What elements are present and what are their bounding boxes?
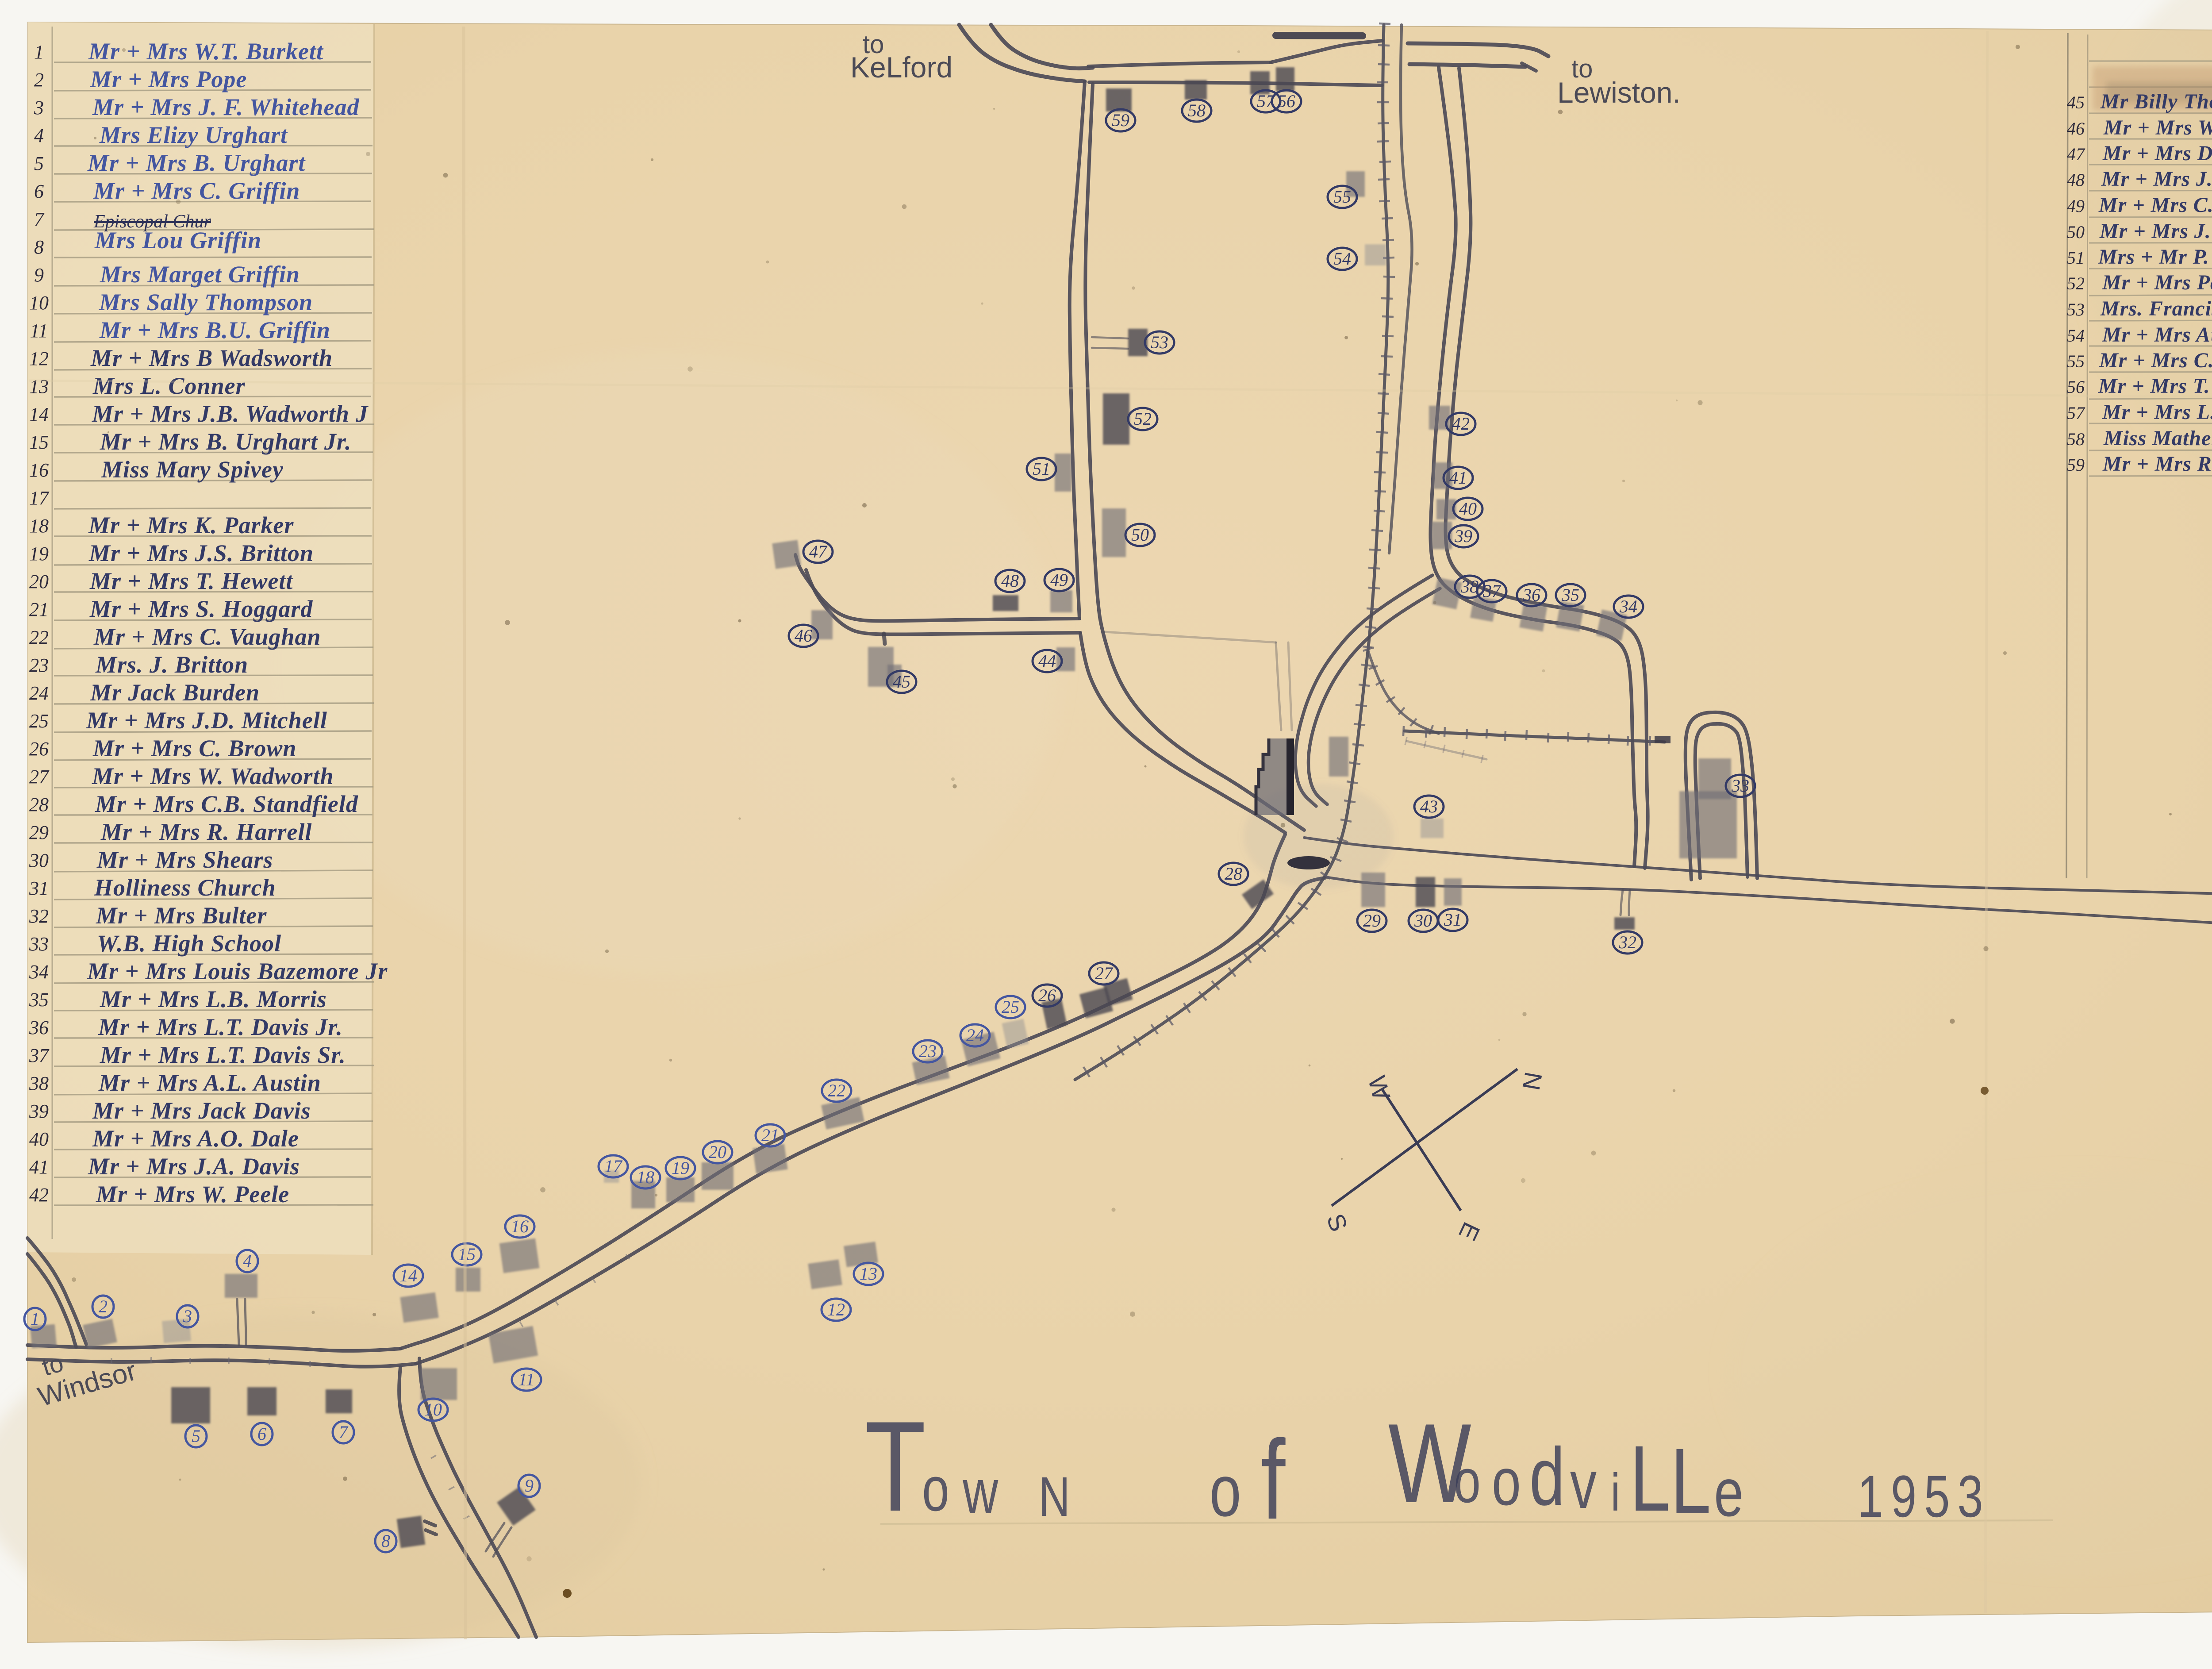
svg-text:38: 38 <box>1460 577 1479 596</box>
svg-text:16: 16 <box>29 459 49 481</box>
svg-text:Mr + Mrs Dunning: Mr + Mrs Dunning <box>2102 142 2212 165</box>
svg-text:Mr + Mrs R. Harrell: Mr + Mrs R. Harrell <box>100 819 312 845</box>
svg-text:57: 57 <box>2067 403 2085 423</box>
svg-text:Lewiston.: Lewiston. <box>1557 76 1681 109</box>
svg-text:52: 52 <box>2067 273 2085 293</box>
svg-text:o: o <box>1210 1450 1241 1532</box>
svg-text:L: L <box>1630 1427 1671 1531</box>
svg-text:55: 55 <box>1333 187 1351 207</box>
svg-text:Mr + Mrs A.L. Austin: Mr + Mrs A.L. Austin <box>98 1069 321 1096</box>
svg-text:52: 52 <box>1134 409 1152 429</box>
svg-text:Mr + Mrs Shears: Mr + Mrs Shears <box>96 846 273 873</box>
svg-text:Mrs. Francis Howard: Mrs. Francis Howard <box>2100 297 2212 320</box>
svg-text:9: 9 <box>525 1476 534 1496</box>
svg-text:10: 10 <box>424 1400 442 1419</box>
svg-text:Mr + Mrs Pope: Mr + Mrs Pope <box>90 66 247 92</box>
svg-text:7: 7 <box>339 1422 349 1442</box>
svg-text:1: 1 <box>34 41 44 63</box>
svg-text:Mr + Mrs L.B. Morris: Mr + Mrs L.B. Morris <box>100 986 327 1012</box>
svg-text:Mr + Mrs J.D. Mitchell: Mr + Mrs J.D. Mitchell <box>86 707 327 734</box>
svg-text:T: T <box>865 1395 926 1538</box>
svg-text:Mr + Mrs W. Wadworth: Mr + Mrs W. Wadworth <box>92 763 334 789</box>
svg-text:9: 9 <box>34 264 44 286</box>
svg-text:38: 38 <box>29 1073 49 1094</box>
svg-text:17: 17 <box>604 1156 623 1176</box>
svg-text:Mr + Mrs K. Parker: Mr + Mrs K. Parker <box>88 512 294 538</box>
svg-text:23: 23 <box>919 1041 937 1061</box>
svg-text:23: 23 <box>29 654 49 676</box>
svg-text:Mr + Mrs S. Hoggard: Mr + Mrs S. Hoggard <box>89 596 313 622</box>
svg-text:53: 53 <box>1151 332 1168 352</box>
svg-text:W.B. High School: W.B. High School <box>97 930 281 957</box>
svg-text:14: 14 <box>29 404 49 425</box>
svg-text:24: 24 <box>29 682 49 704</box>
svg-text:30: 30 <box>29 850 49 871</box>
svg-text:Mr + Mrs W.C. Askew: Mr + Mrs W.C. Askew <box>2103 116 2212 139</box>
svg-text:13: 13 <box>29 376 49 397</box>
svg-text:15: 15 <box>29 431 49 453</box>
svg-text:39: 39 <box>1454 526 1472 546</box>
svg-text:40: 40 <box>29 1128 49 1150</box>
svg-text:o: o <box>1454 1446 1481 1515</box>
svg-text:11: 11 <box>518 1369 534 1389</box>
svg-text:Mr + Mrs T. Hewett: Mr + Mrs T. Hewett <box>89 568 293 594</box>
svg-text:51: 51 <box>1033 459 1050 479</box>
svg-text:55: 55 <box>2067 351 2085 371</box>
svg-text:Miss Mather Bazemore: Miss Mather Bazemore <box>2103 427 2212 450</box>
svg-text:Mrs L. Conner: Mrs L. Conner <box>92 373 246 399</box>
svg-text:Mrs Sally Thompson: Mrs Sally Thompson <box>99 289 313 315</box>
svg-text:Mr + Mrs J.A. Davis: Mr + Mrs J.A. Davis <box>88 1153 300 1180</box>
svg-text:12: 12 <box>29 348 49 369</box>
svg-text:d: d <box>1529 1431 1565 1523</box>
svg-text:Mr + Mrs C.L. Haggard: Mr + Mrs C.L. Haggard <box>2099 349 2212 372</box>
svg-text:Mr + Mrs L. Bazemore Sr: Mr + Mrs L. Bazemore Sr <box>2102 400 2212 424</box>
svg-text:o: o <box>1492 1444 1521 1519</box>
svg-text:Mr + Mrs B.U. Griffin: Mr + Mrs B.U. Griffin <box>99 317 330 343</box>
svg-text:20: 20 <box>29 571 49 592</box>
svg-text:35: 35 <box>1561 585 1579 605</box>
svg-text:32: 32 <box>1618 932 1636 952</box>
svg-text:Mr + Mrs Louis Bazemore Jr: Mr + Mrs Louis Bazemore Jr <box>87 958 388 984</box>
svg-text:59: 59 <box>2067 455 2085 475</box>
svg-text:Mr + Mrs L.T. Davis Jr.: Mr + Mrs L.T. Davis Jr. <box>98 1014 343 1040</box>
svg-text:25: 25 <box>1002 997 1019 1017</box>
svg-text:Mr Billy Thompson: Mr Billy Thompson <box>2100 90 2212 113</box>
svg-text:24: 24 <box>966 1025 984 1045</box>
svg-text:40: 40 <box>1459 499 1477 519</box>
svg-text:36: 36 <box>1522 585 1540 605</box>
svg-text:8: 8 <box>381 1531 390 1551</box>
svg-text:Mr + Mrs J.S. Britton: Mr + Mrs J.S. Britton <box>88 540 314 566</box>
svg-text:54: 54 <box>2067 326 2085 346</box>
svg-text:58: 58 <box>1188 100 1206 120</box>
svg-text:30: 30 <box>1414 911 1432 931</box>
svg-text:Mr + Mrs R. Teaster: Mr + Mrs R. Teaster <box>2102 452 2212 476</box>
svg-text:5: 5 <box>34 153 44 174</box>
svg-text:33: 33 <box>29 933 49 955</box>
svg-text:Mr + Mrs W. Peele: Mr + Mrs W. Peele <box>96 1181 289 1208</box>
svg-text:21: 21 <box>29 599 49 620</box>
svg-text:Mr + Mrs T. Lawrence: Mr + Mrs T. Lawrence <box>2098 374 2212 398</box>
svg-text:4: 4 <box>34 125 44 146</box>
svg-text:Mr + Mrs B. Urghart: Mr + Mrs B. Urghart <box>87 150 306 176</box>
svg-text:17: 17 <box>29 487 50 509</box>
svg-text:27: 27 <box>29 766 50 788</box>
svg-text:58: 58 <box>2067 429 2085 449</box>
svg-text:47: 47 <box>2067 144 2085 164</box>
svg-text:2: 2 <box>99 1296 108 1316</box>
svg-text:6: 6 <box>257 1424 266 1444</box>
svg-text:3: 3 <box>34 97 44 119</box>
svg-text:21: 21 <box>761 1125 779 1145</box>
svg-text:42: 42 <box>1452 414 1470 434</box>
svg-text:27: 27 <box>1095 963 1114 983</box>
svg-text:54: 54 <box>1333 249 1351 269</box>
svg-text:Miss Mary Spivey: Miss Mary Spivey <box>101 456 284 483</box>
svg-text:Mr + Mrs Author L. Ward: Mr + Mrs Author L. Ward <box>2102 323 2212 346</box>
svg-text:56: 56 <box>2067 377 2085 397</box>
svg-text:22: 22 <box>29 627 49 648</box>
svg-text:N: N <box>1039 1465 1070 1528</box>
svg-text:Mrs + Mr P. Morris: Mrs + Mr P. Morris <box>2098 245 2212 269</box>
svg-text:29: 29 <box>29 822 49 843</box>
svg-text:4: 4 <box>243 1251 252 1271</box>
svg-text:42: 42 <box>29 1184 49 1206</box>
svg-text:15: 15 <box>458 1244 476 1264</box>
svg-text:Mr + Mrs A.O. Dale: Mr + Mrs A.O. Dale <box>92 1125 299 1152</box>
svg-text:29: 29 <box>1363 911 1381 931</box>
svg-text:14: 14 <box>399 1265 417 1285</box>
svg-text:11: 11 <box>30 320 48 342</box>
svg-text:Mr + Mrs J. Mitchell: Mr + Mrs J. Mitchell <box>2099 219 2212 243</box>
svg-text:i: i <box>1611 1463 1620 1522</box>
svg-text:50: 50 <box>2067 222 2085 242</box>
svg-text:28: 28 <box>1225 864 1242 884</box>
svg-text:Mr + Mrs Paul Jernigan: Mr + Mrs Paul Jernigan <box>2102 271 2212 294</box>
svg-text:28: 28 <box>29 794 49 815</box>
svg-text:18: 18 <box>29 515 49 537</box>
svg-text:Holliness Church: Holliness Church <box>94 874 276 901</box>
svg-text:26: 26 <box>1038 985 1056 1005</box>
svg-text:Mr + Mrs Bulter: Mr + Mrs Bulter <box>96 902 267 929</box>
svg-text:e: e <box>1714 1455 1743 1531</box>
svg-text:19: 19 <box>672 1158 689 1178</box>
svg-text:53: 53 <box>2067 300 2085 319</box>
svg-text:46: 46 <box>2067 119 2085 138</box>
svg-text:Mr + Mrs B Wadsworth: Mr + Mrs B Wadsworth <box>90 345 333 371</box>
svg-text:8: 8 <box>34 236 44 258</box>
svg-text:w: w <box>962 1457 998 1527</box>
svg-text:18: 18 <box>637 1167 654 1187</box>
svg-text:49: 49 <box>1050 570 1068 590</box>
svg-text:44: 44 <box>1038 651 1056 671</box>
svg-text:5: 5 <box>192 1426 200 1446</box>
svg-text:Mr + Mrs J. F. Whitehead: Mr + Mrs J. F. Whitehead <box>92 94 359 120</box>
svg-text:46: 46 <box>795 626 812 646</box>
svg-text:6: 6 <box>34 181 44 202</box>
svg-text:Mr + Mrs C. Harrell: Mr + Mrs C. Harrell <box>2098 193 2212 217</box>
svg-text:Mrs Marget Griffin: Mrs Marget Griffin <box>100 261 300 288</box>
svg-text:36: 36 <box>29 1017 49 1038</box>
svg-text:Mr + Mrs Jack Davis: Mr + Mrs Jack Davis <box>92 1097 311 1124</box>
svg-text:20: 20 <box>709 1142 726 1162</box>
svg-text:v: v <box>1570 1447 1597 1523</box>
svg-text:L: L <box>1671 1429 1711 1533</box>
svg-text:25: 25 <box>29 710 49 732</box>
svg-text:34: 34 <box>29 961 49 983</box>
svg-text:KeLford: KeLford <box>850 51 952 84</box>
svg-text:32: 32 <box>29 905 49 927</box>
svg-text:37: 37 <box>29 1045 50 1066</box>
svg-text:35: 35 <box>29 989 49 1011</box>
svg-text:48: 48 <box>2067 170 2085 190</box>
svg-text:Mr + Mrs L.T. Davis Sr.: Mr + Mrs L.T. Davis Sr. <box>100 1042 346 1068</box>
svg-text:Mr + Mrs J.B. Wadworth J: Mr + Mrs J.B. Wadworth J <box>92 400 369 427</box>
svg-text:10: 10 <box>29 292 49 314</box>
svg-text:2: 2 <box>34 69 44 91</box>
svg-text:Mr + Mrs C.B. Standfield: Mr + Mrs C.B. Standfield <box>95 791 358 817</box>
svg-text:12: 12 <box>827 1300 845 1319</box>
svg-text:50: 50 <box>1131 525 1149 545</box>
svg-text:59: 59 <box>1112 110 1129 130</box>
svg-text:Mr + Mrs C. Griffin: Mr + Mrs C. Griffin <box>93 177 300 204</box>
svg-text:31: 31 <box>1444 910 1462 930</box>
svg-text:26: 26 <box>29 738 49 760</box>
svg-text:33: 33 <box>1731 776 1749 796</box>
svg-text:19: 19 <box>29 543 49 565</box>
svg-text:13: 13 <box>860 1264 877 1284</box>
svg-text:Mr Jack Burden: Mr Jack Burden <box>90 679 260 706</box>
svg-text:41: 41 <box>1449 468 1467 488</box>
svg-text:51: 51 <box>2067 248 2085 268</box>
svg-text:45: 45 <box>893 672 910 692</box>
svg-text:16: 16 <box>511 1216 529 1236</box>
svg-text:3: 3 <box>183 1306 192 1326</box>
svg-text:7: 7 <box>34 208 45 230</box>
svg-text:39: 39 <box>29 1100 49 1122</box>
svg-text:Mr + Mrs C. Brown: Mr + Mrs C. Brown <box>92 735 296 761</box>
svg-text:Mr + Mrs C. Vaughan: Mr + Mrs C. Vaughan <box>93 623 321 650</box>
svg-text:45: 45 <box>2067 92 2085 112</box>
svg-text:37: 37 <box>1482 581 1502 601</box>
svg-text:34: 34 <box>1619 596 1637 616</box>
svg-text:Mr + Mrs B. Urghart Jr.: Mr + Mrs B. Urghart Jr. <box>100 428 351 455</box>
svg-text:Mrs Lou Griffin: Mrs Lou Griffin <box>94 227 261 254</box>
svg-text:o: o <box>922 1454 949 1524</box>
svg-text:57: 57 <box>1257 91 1275 111</box>
svg-text:1: 1 <box>31 1309 39 1329</box>
svg-text:31: 31 <box>29 877 49 899</box>
svg-text:43: 43 <box>1420 796 1438 816</box>
svg-text:41: 41 <box>29 1156 49 1178</box>
svg-text:Mr + Mrs J. Skinner: Mr + Mrs J. Skinner <box>2101 167 2212 191</box>
svg-text:f: f <box>1261 1417 1286 1542</box>
svg-text:48: 48 <box>1001 571 1019 591</box>
svg-text:22: 22 <box>828 1081 845 1100</box>
svg-text:47: 47 <box>809 542 828 561</box>
svg-text:Mrs Elizy Urghart: Mrs Elizy Urghart <box>99 122 288 148</box>
svg-text:Mrs. J. Britton: Mrs. J. Britton <box>95 651 248 678</box>
svg-text:49: 49 <box>2067 196 2085 216</box>
